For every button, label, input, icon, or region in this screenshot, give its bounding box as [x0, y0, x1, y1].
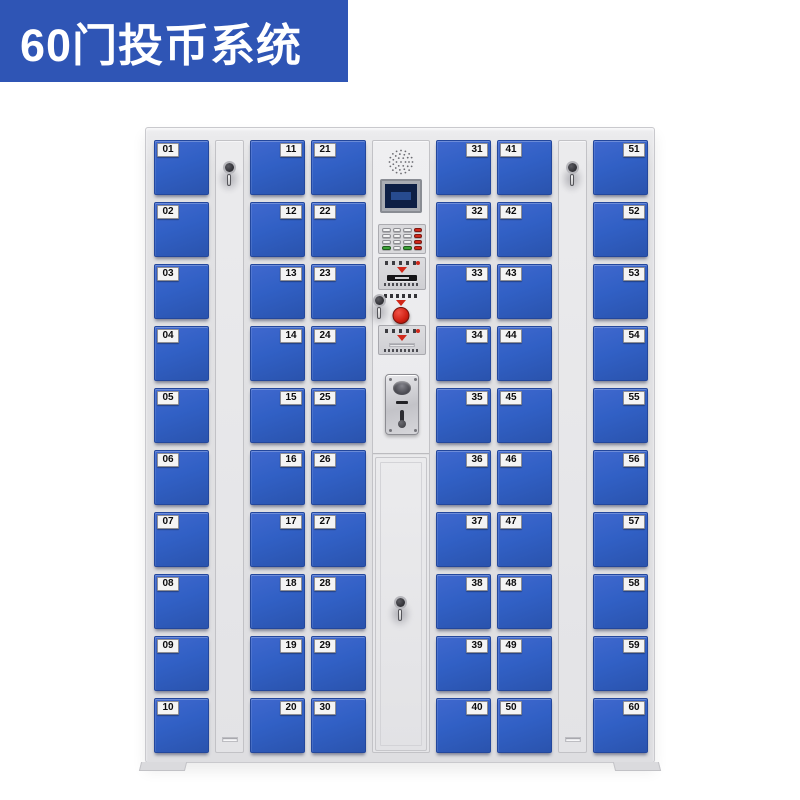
locker-door-30[interactable]: 30	[311, 698, 366, 753]
locker-door-52[interactable]: 52	[593, 202, 648, 257]
door-number-label: 33	[466, 267, 488, 281]
locker-door-38[interactable]: 38	[436, 574, 491, 629]
side-lock-strip	[558, 140, 587, 753]
locker-door-58[interactable]: 58	[593, 574, 648, 629]
ticket-caption	[384, 349, 420, 352]
inserted-key-icon[interactable]	[398, 609, 402, 621]
ticket-dispenser	[378, 325, 426, 355]
ticket-label	[385, 329, 419, 333]
door-column: 21222324252627282930	[311, 140, 366, 753]
door-number-label: 12	[280, 205, 302, 219]
locker-door-16[interactable]: 16	[250, 450, 305, 505]
door-number-label: 39	[466, 639, 488, 653]
door-number-label: 18	[280, 577, 302, 591]
locker-door-29[interactable]: 29	[311, 636, 366, 691]
locker-door-60[interactable]: 60	[593, 698, 648, 753]
door-number-label: 26	[314, 453, 336, 467]
keypad-button[interactable]	[382, 246, 391, 250]
locker-door-55[interactable]: 55	[593, 388, 648, 443]
locker-columns: 01020304050607080910 1112131415161718192…	[154, 140, 648, 753]
locker-door-06[interactable]: 06	[154, 450, 209, 505]
coin-acceptor[interactable]	[385, 374, 419, 435]
door-number-label: 59	[623, 639, 645, 653]
locker-door-33[interactable]: 33	[436, 264, 491, 319]
display-screen	[380, 179, 422, 213]
control-panel	[372, 140, 430, 753]
speaker-grille-icon	[388, 149, 414, 175]
door-number-label: 58	[623, 577, 645, 591]
locker-door-04[interactable]: 04	[154, 326, 209, 381]
door-column: 11121314151617181920	[250, 140, 305, 753]
ticket-slot[interactable]	[389, 343, 415, 347]
locker-door-34[interactable]: 34	[436, 326, 491, 381]
door-number-label: 29	[314, 639, 336, 653]
door-number-label: 10	[157, 701, 179, 715]
service-door[interactable]	[375, 457, 427, 751]
locker-door-01[interactable]: 01	[154, 140, 209, 195]
cabinet-foot-right	[613, 762, 661, 771]
coin-slot[interactable]	[396, 401, 408, 404]
door-number-label: 16	[280, 453, 302, 467]
lock-cylinder-icon[interactable]	[225, 163, 234, 172]
locker-door-49[interactable]: 49	[497, 636, 552, 691]
keypad-button[interactable]	[382, 240, 391, 244]
keypad-button[interactable]	[414, 246, 423, 250]
door-number-label: 57	[623, 515, 645, 529]
door-number-label: 21	[314, 143, 336, 157]
locker-door-35[interactable]: 35	[436, 388, 491, 443]
locker-door-53[interactable]: 53	[593, 264, 648, 319]
locker-cabinet: 01020304050607080910 1112131415161718192…	[145, 127, 655, 763]
door-number-label: 52	[623, 205, 645, 219]
side-lock-strip	[215, 140, 244, 753]
banner-title: 60门投币系统	[20, 9, 302, 74]
door-number-label: 60	[623, 701, 645, 715]
door-number-label: 37	[466, 515, 488, 529]
door-number-label: 11	[280, 143, 302, 157]
door-number-label: 34	[466, 329, 488, 343]
door-number-label: 44	[500, 329, 522, 343]
door-number-label: 47	[500, 515, 522, 529]
door-number-label: 05	[157, 391, 179, 405]
door-number-label: 45	[500, 391, 522, 405]
keypad-button[interactable]	[403, 246, 412, 250]
door-number-label: 48	[500, 577, 522, 591]
door-number-label: 27	[314, 515, 336, 529]
locker-door-54[interactable]: 54	[593, 326, 648, 381]
locker-door-36[interactable]: 36	[436, 450, 491, 505]
lock-cylinder-icon[interactable]	[568, 163, 577, 172]
door-number-label: 56	[623, 453, 645, 467]
door-column: 51525354555657585960	[593, 140, 648, 753]
locker-door-18[interactable]: 18	[250, 574, 305, 629]
inserted-key-icon[interactable]	[570, 174, 574, 186]
door-number-label: 41	[500, 143, 522, 157]
door-number-label: 31	[466, 143, 488, 157]
locker-door-02[interactable]: 02	[154, 202, 209, 257]
strip-bottom-slot	[222, 737, 238, 742]
locker-door-23[interactable]: 23	[311, 264, 366, 319]
inserted-key-icon[interactable]	[377, 307, 381, 319]
locker-door-57[interactable]: 57	[593, 512, 648, 567]
locker-door-48[interactable]: 48	[497, 574, 552, 629]
card-slot[interactable]	[387, 275, 417, 281]
locker-door-03[interactable]: 03	[154, 264, 209, 319]
locker-door-14[interactable]: 14	[250, 326, 305, 381]
door-number-label: 46	[500, 453, 522, 467]
door-number-label: 49	[500, 639, 522, 653]
locker-door-31[interactable]: 31	[436, 140, 491, 195]
door-number-label: 43	[500, 267, 522, 281]
coin-entry-icon	[393, 381, 411, 395]
locker-door-22[interactable]: 22	[311, 202, 366, 257]
keypad-button[interactable]	[414, 240, 423, 244]
service-door-lock[interactable]	[395, 598, 408, 628]
locker-door-17[interactable]: 17	[250, 512, 305, 567]
door-number-label: 17	[280, 515, 302, 529]
locker-door-27[interactable]: 27	[311, 512, 366, 567]
locker-door-10[interactable]: 10	[154, 698, 209, 753]
locker-door-40[interactable]: 40	[436, 698, 491, 753]
door-number-label: 08	[157, 577, 179, 591]
door-number-label: 38	[466, 577, 488, 591]
door-number-label: 32	[466, 205, 488, 219]
locker-door-42[interactable]: 42	[497, 202, 552, 257]
door-number-label: 22	[314, 205, 336, 219]
door-number-label: 06	[157, 453, 179, 467]
door-number-label: 19	[280, 639, 302, 653]
locker-door-20[interactable]: 20	[250, 698, 305, 753]
locker-door-37[interactable]: 37	[436, 512, 491, 567]
door-number-label: 36	[466, 453, 488, 467]
strip-bottom-slot	[565, 737, 581, 742]
locker-door-26[interactable]: 26	[311, 450, 366, 505]
panel-seam	[373, 453, 429, 455]
door-number-label: 15	[280, 391, 302, 405]
door-number-label: 53	[623, 267, 645, 281]
door-number-label: 28	[314, 577, 336, 591]
locker-door-28[interactable]: 28	[311, 574, 366, 629]
door-number-label: 35	[466, 391, 488, 405]
keypad-button[interactable]	[403, 240, 412, 244]
locker-door-08[interactable]: 08	[154, 574, 209, 629]
keypad-button[interactable]	[393, 228, 402, 232]
locker-door-45[interactable]: 45	[497, 388, 552, 443]
keypad-button[interactable]	[393, 234, 402, 238]
card-reader-label	[385, 261, 419, 265]
door-number-label: 54	[623, 329, 645, 343]
master-key-lock[interactable]	[374, 296, 387, 326]
locker-door-39[interactable]: 39	[436, 636, 491, 691]
coin-return-lever[interactable]	[400, 410, 404, 423]
screw-icon	[389, 378, 392, 381]
door-number-label: 20	[280, 701, 302, 715]
button-arrow-icon	[396, 300, 406, 306]
title-banner: 60门投币系统	[0, 0, 348, 82]
keypad-button[interactable]	[414, 234, 423, 238]
locker-door-59[interactable]: 59	[593, 636, 648, 691]
card-reader-caption	[384, 283, 420, 286]
locker-door-56[interactable]: 56	[593, 450, 648, 505]
keypad-button[interactable]	[403, 228, 412, 232]
locker-door-12[interactable]: 12	[250, 202, 305, 257]
locker-door-13[interactable]: 13	[250, 264, 305, 319]
keypad[interactable]	[378, 224, 426, 254]
locker-door-43[interactable]: 43	[497, 264, 552, 319]
door-number-label: 25	[314, 391, 336, 405]
key-lock-icon[interactable]	[224, 163, 237, 193]
locker-door-09[interactable]: 09	[154, 636, 209, 691]
locker-door-51[interactable]: 51	[593, 140, 648, 195]
door-number-label: 51	[623, 143, 645, 157]
door-number-label: 07	[157, 515, 179, 529]
key-lock-icon[interactable]	[567, 163, 580, 193]
door-number-label: 42	[500, 205, 522, 219]
door-number-label: 55	[623, 391, 645, 405]
emergency-button[interactable]	[393, 307, 410, 324]
door-number-label: 09	[157, 639, 179, 653]
locker-door-19[interactable]: 19	[250, 636, 305, 691]
insert-arrow-icon	[397, 267, 407, 273]
lock-cylinder-icon[interactable]	[375, 296, 384, 305]
card-reader	[378, 257, 426, 290]
locker-door-21[interactable]: 21	[311, 140, 366, 195]
door-number-label: 03	[157, 267, 179, 281]
locker-door-15[interactable]: 15	[250, 388, 305, 443]
lcd-backlight	[391, 192, 411, 200]
door-number-label: 23	[314, 267, 336, 281]
locker-door-05[interactable]: 05	[154, 388, 209, 443]
locker-door-24[interactable]: 24	[311, 326, 366, 381]
keypad-button[interactable]	[414, 228, 423, 232]
door-column: 41424344454647484950	[497, 140, 552, 753]
door-number-label: 02	[157, 205, 179, 219]
door-number-label: 14	[280, 329, 302, 343]
door-number-label: 13	[280, 267, 302, 281]
locker-door-07[interactable]: 07	[154, 512, 209, 567]
locker-door-50[interactable]: 50	[497, 698, 552, 753]
lock-cylinder-icon[interactable]	[396, 598, 405, 607]
locker-door-47[interactable]: 47	[497, 512, 552, 567]
locker-door-44[interactable]: 44	[497, 326, 552, 381]
door-number-label: 04	[157, 329, 179, 343]
door-number-label: 50	[500, 701, 522, 715]
locker-door-32[interactable]: 32	[436, 202, 491, 257]
lcd-screen	[385, 184, 417, 208]
door-number-label: 01	[157, 143, 179, 157]
locker-door-11[interactable]: 11	[250, 140, 305, 195]
keypad-button[interactable]	[393, 246, 402, 250]
cabinet-foot-left	[139, 762, 187, 771]
door-column: 01020304050607080910	[154, 140, 209, 753]
ticket-arrow-icon	[397, 335, 407, 341]
locker-door-41[interactable]: 41	[497, 140, 552, 195]
door-number-label: 24	[314, 329, 336, 343]
door-column: 31323334353637383940	[436, 140, 491, 753]
keypad-button[interactable]	[382, 234, 391, 238]
keypad-button[interactable]	[393, 240, 402, 244]
keypad-button[interactable]	[382, 228, 391, 232]
locker-door-25[interactable]: 25	[311, 388, 366, 443]
keypad-button[interactable]	[403, 234, 412, 238]
door-number-label: 40	[466, 701, 488, 715]
inserted-key-icon[interactable]	[227, 174, 231, 186]
door-number-label: 30	[314, 701, 336, 715]
locker-door-46[interactable]: 46	[497, 450, 552, 505]
